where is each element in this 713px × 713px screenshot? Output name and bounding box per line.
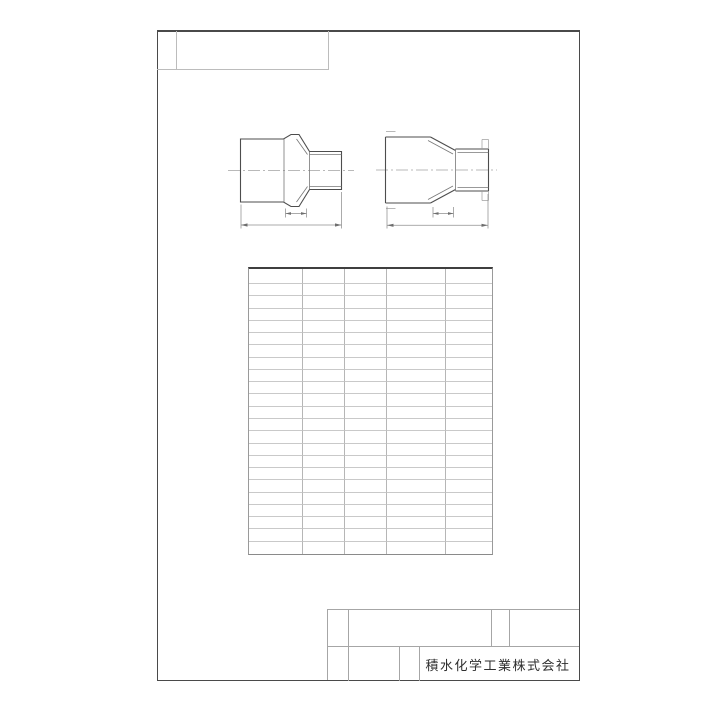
table-cell xyxy=(446,333,492,345)
table-cell xyxy=(249,321,303,333)
table-cell xyxy=(446,542,492,554)
table-cell xyxy=(345,431,387,443)
table-cell xyxy=(446,394,492,406)
table-cell xyxy=(387,269,446,284)
table-cell xyxy=(446,444,492,456)
table-cell xyxy=(303,296,345,308)
title-block-divider xyxy=(509,610,510,646)
table-cell xyxy=(303,542,345,554)
table-cell xyxy=(446,321,492,333)
table-cell xyxy=(303,321,345,333)
table-cell xyxy=(345,419,387,431)
table-cell xyxy=(387,296,446,308)
table-cell xyxy=(249,284,303,296)
table-cell xyxy=(345,358,387,370)
table-cell xyxy=(345,468,387,480)
title-block-divider xyxy=(348,647,349,681)
table-cell xyxy=(345,529,387,541)
table-cell xyxy=(249,370,303,382)
title-block-row-bottom: 積水化学工業株式会社 xyxy=(328,646,579,681)
table-cell xyxy=(303,370,345,382)
title-block-divider xyxy=(491,610,492,646)
table-cell xyxy=(303,529,345,541)
drawing-sheet-canvas: 積水化学工業株式会社 xyxy=(0,0,713,713)
title-block-row-top xyxy=(328,610,579,646)
table-cell xyxy=(303,517,345,529)
table-cell xyxy=(446,296,492,308)
table-cell xyxy=(387,456,446,468)
table-cell xyxy=(387,529,446,541)
table-cell xyxy=(446,269,492,284)
table-cell xyxy=(387,284,446,296)
table-cell xyxy=(387,358,446,370)
title-block-divider xyxy=(399,647,400,681)
table-cell xyxy=(345,505,387,517)
table-cell xyxy=(249,431,303,443)
table-cell xyxy=(345,480,387,492)
dimension-arrowheads xyxy=(241,212,342,227)
table-cell xyxy=(345,333,387,345)
table-cell xyxy=(249,382,303,394)
table-cell xyxy=(303,431,345,443)
table-cell xyxy=(387,468,446,480)
table-cell xyxy=(345,269,387,284)
table-cell xyxy=(303,407,345,419)
table-cell xyxy=(249,529,303,541)
company-name-text: 積水化学工業株式会社 xyxy=(419,647,577,681)
table-cell xyxy=(387,345,446,357)
table-cell xyxy=(387,309,446,321)
table-cell xyxy=(446,529,492,541)
spec-table xyxy=(248,267,493,555)
table-cell xyxy=(303,493,345,505)
table-cell xyxy=(387,394,446,406)
table-cell xyxy=(249,444,303,456)
table-cell xyxy=(249,456,303,468)
table-cell xyxy=(387,370,446,382)
table-cell xyxy=(249,394,303,406)
table-cell xyxy=(249,419,303,431)
table-cell xyxy=(303,480,345,492)
table-cell xyxy=(446,419,492,431)
table-cell xyxy=(303,456,345,468)
table-cell xyxy=(303,468,345,480)
reducer-fitting-left-view xyxy=(228,135,354,229)
table-cell xyxy=(387,321,446,333)
table-cell xyxy=(345,542,387,554)
table-cell xyxy=(303,345,345,357)
table-cell xyxy=(249,333,303,345)
table-cell xyxy=(345,345,387,357)
table-cell xyxy=(446,382,492,394)
table-cell xyxy=(345,296,387,308)
table-cell xyxy=(345,382,387,394)
table-cell xyxy=(249,345,303,357)
table-cell xyxy=(387,542,446,554)
table-cell xyxy=(387,444,446,456)
table-cell xyxy=(303,269,345,284)
table-cell xyxy=(345,517,387,529)
table-cell xyxy=(345,321,387,333)
table-cell xyxy=(387,431,446,443)
dimension-lines xyxy=(241,192,342,229)
table-cell xyxy=(446,358,492,370)
table-cell xyxy=(446,468,492,480)
table-cell xyxy=(446,407,492,419)
table-cell xyxy=(446,309,492,321)
table-cell xyxy=(249,296,303,308)
table-cell xyxy=(303,382,345,394)
table-cell xyxy=(303,505,345,517)
title-block-divider xyxy=(348,610,349,646)
reducer-fitting-right-view xyxy=(376,132,497,229)
table-cell xyxy=(387,517,446,529)
table-cell xyxy=(249,407,303,419)
table-cell xyxy=(249,542,303,554)
table-cell xyxy=(345,284,387,296)
table-cell xyxy=(387,407,446,419)
table-cell xyxy=(345,394,387,406)
table-cell xyxy=(249,505,303,517)
table-cell xyxy=(249,309,303,321)
table-cell xyxy=(249,493,303,505)
table-cell xyxy=(446,431,492,443)
table-cell xyxy=(303,419,345,431)
table-cell xyxy=(345,456,387,468)
table-cell xyxy=(249,480,303,492)
title-block: 積水化学工業株式会社 xyxy=(327,609,579,680)
table-cell xyxy=(446,370,492,382)
table-cell xyxy=(303,444,345,456)
dimension-arrowheads xyxy=(387,212,488,227)
table-cell xyxy=(345,370,387,382)
table-cell xyxy=(387,505,446,517)
table-cell xyxy=(249,358,303,370)
table-cell xyxy=(446,480,492,492)
table-cell xyxy=(446,505,492,517)
table-cell xyxy=(387,493,446,505)
table-cell xyxy=(446,493,492,505)
table-cell xyxy=(446,456,492,468)
table-cell xyxy=(446,345,492,357)
table-cell xyxy=(303,358,345,370)
table-cell xyxy=(345,493,387,505)
table-cell xyxy=(345,407,387,419)
table-cell xyxy=(303,333,345,345)
table-cell xyxy=(249,269,303,284)
table-cell xyxy=(446,517,492,529)
table-cell xyxy=(249,517,303,529)
table-cell xyxy=(345,444,387,456)
table-cell xyxy=(387,382,446,394)
table-cell xyxy=(446,284,492,296)
table-cell xyxy=(387,480,446,492)
table-cell xyxy=(303,394,345,406)
table-cell xyxy=(303,309,345,321)
table-cell xyxy=(303,284,345,296)
table-cell xyxy=(345,309,387,321)
table-cell xyxy=(249,468,303,480)
table-cell xyxy=(387,333,446,345)
table-cell xyxy=(387,419,446,431)
